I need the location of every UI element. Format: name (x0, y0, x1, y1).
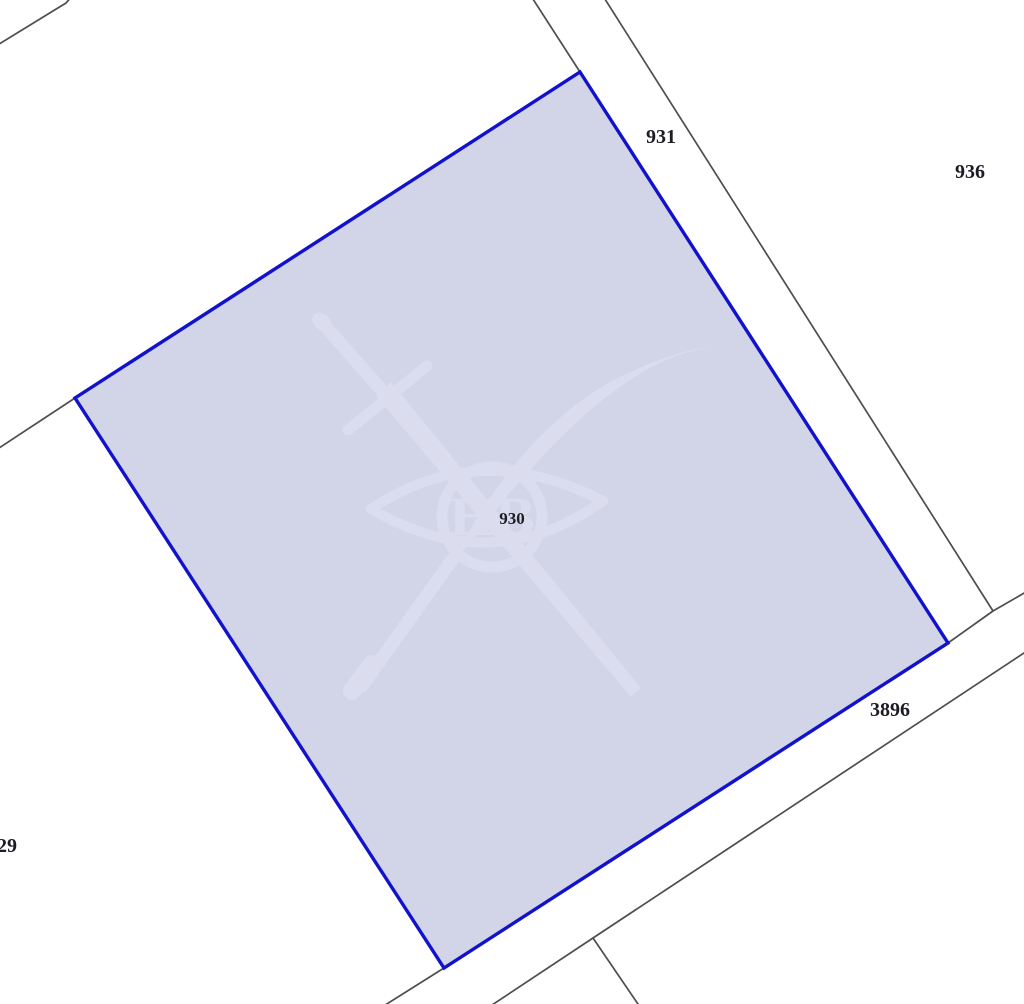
label-parcel-929-partial: 29 (0, 835, 17, 857)
boundary-line-north-segment (531, 0, 580, 72)
boundary-line-top-left (0, 0, 74, 46)
label-parcel-936: 936 (955, 161, 985, 183)
label-parcel-930: 930 (499, 509, 525, 528)
label-road-3896: 3896 (870, 699, 910, 721)
cadastral-map: НВ 931 936 930 3896 29 (0, 0, 1024, 1004)
map-canvas: НВ 931 936 930 3896 29 (0, 0, 1024, 1004)
boundary-branch-bottom (593, 938, 640, 1004)
label-parcel-931: 931 (646, 126, 676, 148)
boundary-line-west (0, 398, 75, 450)
road-edge-south-continuation (382, 968, 444, 1004)
